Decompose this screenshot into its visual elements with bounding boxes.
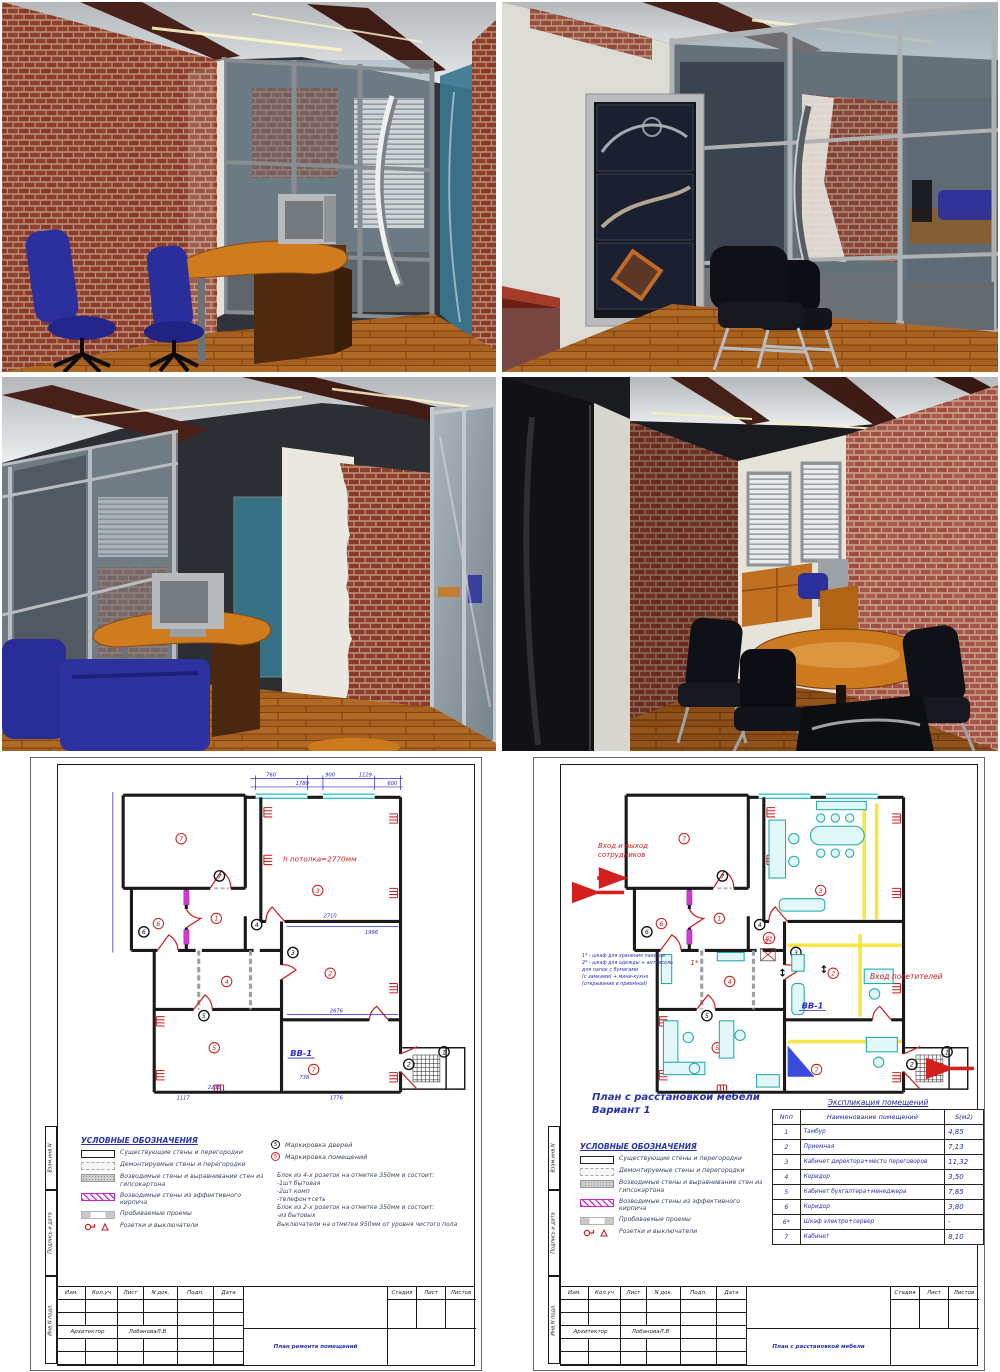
tb-podp: Подп. [681,1287,717,1300]
legend-item: Розетки и выключатели [580,1228,769,1237]
dark-wardrobe [502,377,594,751]
tb-koluch: Кол.уч [86,1287,118,1300]
svg-text:ВВ-1: ВВ-1 [802,1000,824,1010]
title-block: Изм. Кол.уч Лист N док. Подп. Дата Архит… [57,1286,475,1366]
legend-item: Возводимые стены и выравнивание стен из … [81,1173,270,1189]
gypsum-wall-swatch [81,1174,115,1182]
svg-text:1776: 1776 [330,1095,344,1101]
mirrored-wardrobe [432,405,496,747]
drawing-title: План ремонта помещений [244,1329,388,1365]
legend-item: Пробиваемые проемы [580,1216,769,1225]
note-line: Блок из 4-х розеток на отметке 350мм и с… [277,1172,472,1180]
furniture-floor-plan: ↕ ↕ 6* 1* 2* ВВ-1 [562,766,976,1108]
note-line: Выключатели на отметке 950мм от уровня ч… [277,1221,472,1229]
explication-title: Экспликация помещений [772,1098,984,1107]
demolished-wall-swatch [81,1162,115,1170]
table-row: 6Коридор3,80 [773,1200,984,1215]
side-label: Взам.инв.N [48,1143,54,1172]
ceiling-height-note: h потолка=2770мм [283,854,357,863]
table-row: 1Тамбур4,85 [773,1125,984,1140]
closet-notes: 1* - шкаф для хранения пакетов 2* - шкаф… [582,954,712,989]
svg-text:1117: 1117 [177,1095,191,1101]
svg-text:900: 900 [325,773,336,779]
render-meeting-room-svg [502,377,998,751]
vv1-label: ВВ-1 [288,1048,315,1058]
note-line: 2* - шкаф для одежды + антресоль [582,961,712,968]
svg-text:1996: 1996 [365,930,379,936]
window-blinds [748,473,790,565]
svg-text:760: 760 [266,773,277,779]
drawing-sheet-furniture-plan: Взам.инв.N Подпись и дата Инв.N подл. [533,757,985,1371]
side-label: Подпись и дата [551,1212,557,1253]
svg-text:2238: 2238 [208,1085,222,1091]
renovation-floor-plan: 760 1780 900 1129 600 2710 1996 2676 223… [59,766,473,1108]
note-line: -телефон+сеть [277,1196,472,1204]
legend-item: Демонтируемые стены и перегородки [81,1161,270,1170]
tb-data: Дата [214,1287,244,1300]
table-row: 4Коридор3,50 [773,1170,984,1185]
side-stamp-cell: Подпись и дата [45,1190,57,1276]
legend-item: Демонтируемые стены и перегородки [580,1167,769,1176]
tb-ndok: N док. [144,1287,178,1300]
electrical-notes: Блок из 4-х розеток на отметке 350мм и с… [277,1172,472,1229]
table-row: 3Кабинет директора+место переговоров11,3… [773,1155,984,1170]
side-stamp-cell: Подпись и дата [548,1190,560,1276]
legend-item: Существующие стены и перегородки [81,1149,270,1158]
socket-switch-icon [580,1229,614,1237]
side-stamp-cell: Взам.инв.N [45,1126,57,1190]
visitors-entrance-note: Вход посетителей [870,972,960,982]
explication-table: Nпп Наименование помещений S(м2) 1Тамбур… [772,1109,984,1245]
tb-izm: Изм. [58,1287,86,1300]
closet2-label: 2* [764,937,773,946]
table-header-row: Nпп Наименование помещений S(м2) [773,1110,984,1125]
svg-text:ВВ-1: ВВ-1 [290,1048,312,1058]
brick-wall-torn-plaster [340,463,432,707]
tb-stadia: Стадия [388,1287,417,1300]
white-wall [282,447,354,717]
render-office-mirror-wardrobe [2,377,496,751]
title-block: Изм. Кол.уч Лист N док. Подп. Дата Архит… [560,1286,978,1366]
legend-item: Существующие стены и перегородки [580,1155,769,1164]
legend: УСЛОВНЫЕ ОБОЗНАЧЕНИЯ Существующие стены … [580,1142,769,1240]
tb-architect-name: ЛобановаЛ.В [621,1326,681,1339]
render-meeting-room [502,377,998,751]
note-line: для папок с бумагами [582,968,712,975]
svg-text:1780: 1780 [296,781,310,787]
note-line: -1шт бытовая [277,1180,472,1188]
svg-text:600: 600 [387,781,398,787]
svg-text:↕: ↕ [820,964,829,976]
render-waiting-area-svg [502,2,998,372]
note-line: -из бытовых [277,1212,472,1220]
render-waiting-area [502,2,998,372]
side-label: Взам.инв.N [551,1143,557,1172]
room-marking-badge: 5 [271,1152,280,1161]
gypsum-wall-swatch [580,1180,614,1188]
note-line: Блок из 2-х розеток на отметке 350мм и с… [277,1204,472,1212]
tb-architect-role: Архитектор [561,1326,621,1339]
socket-switch-icon [81,1223,115,1231]
tb-koluch: Кол.уч [589,1287,621,1300]
triptych-artwork [586,94,704,326]
svg-text:2710: 2710 [324,913,338,919]
existing-wall-swatch [580,1156,614,1164]
dimension-lines: 760 1780 900 1129 600 2710 1996 2676 223… [113,773,403,1102]
brick-wall-right [472,20,496,372]
tb-list2: Лист [920,1287,949,1300]
side-label: Инв.N подл. [551,1304,557,1335]
tb-architect-name: ЛобановаЛ.В [118,1326,178,1339]
door-marking-item: 5Маркировка дверей [271,1140,367,1149]
reception-desk [174,241,352,364]
door-marking-badge: 5 [271,1140,280,1149]
table-row: 6*Шкаф электро+сервер- [773,1215,984,1230]
legend: УСЛОВНЫЕ ОБОЗНАЧЕНИЯ Существующие стены … [81,1136,270,1234]
note-line: -2шт комп [277,1188,472,1196]
tb-ndok: N док. [647,1287,681,1300]
svg-text:2676: 2676 [330,1009,344,1015]
existing-wall-swatch [81,1150,115,1158]
tb-listov: Листов [949,1287,979,1300]
room-explication: Экспликация помещений Nпп Наименование п… [772,1098,984,1245]
table-row: 2Приемная7,13 [773,1140,984,1155]
drawing-title: План с расстановкой мебели [747,1329,891,1365]
tb-list: Лист [118,1287,144,1300]
legend-item: Возводимые стены из эффективного кирпича [580,1198,769,1214]
room-marking-item: 5Маркировка помещений [271,1152,367,1161]
legend-item: Пробиваемые проемы [81,1210,270,1219]
brick-wall-swatch [81,1193,115,1201]
plan-heading: План с расстановкой мебели Вариант 1 [592,1092,760,1117]
side-stamp-cell: Взам.инв.N [548,1126,560,1190]
blue-triangle-marker [788,1046,815,1077]
legend-title: УСЛОВНЫЕ ОБОЗНАЧЕНИЯ [580,1142,769,1151]
note-line: (открывание в приемной) [582,982,712,989]
tb-listov: Листов [446,1287,476,1300]
staff-entrance-note: Вход и выход сотрудников [598,842,672,860]
crt-monitor [152,573,224,637]
side-label: Подпись и дата [48,1212,54,1253]
tb-data: Дата [717,1287,747,1300]
render-office-mirror-svg [2,377,496,751]
drawing-sheet-renovation-plan: Взам.инв.N Подпись и дата Инв.N подл. 76… [30,757,482,1371]
side-stamp-cell: Инв.N подл. [548,1276,560,1364]
brick-wall-swatch [580,1199,614,1207]
render-office-reception-svg [2,2,496,372]
svg-text:↕: ↕ [778,967,787,979]
window-blinds [802,463,840,561]
table-row: 7Кабинет8,10 [773,1230,984,1245]
tb-izm: Изм. [561,1287,589,1300]
tb-architect-role: Архитектор [58,1326,118,1339]
vv1-label: ВВ-1 [799,1000,826,1010]
design-presentation-page: 7 1 6 4 5 3 2 7 7 6 5 4 3 2 1 [0,0,1000,1372]
note-line: (с замками) + мини-кухня [582,975,712,982]
plan-heading-line2: Вариант 1 [592,1105,760,1118]
tb-podp: Подп. [178,1287,214,1300]
side-label: Инв.N подл. [48,1304,54,1335]
plan-heading-line1: План с расстановкой мебели [592,1092,760,1105]
tb-list2: Лист [417,1287,446,1300]
white-wall-sliver [594,403,630,751]
legend-item: Возводимые стены и выравнивание стен из … [580,1179,769,1195]
table-row: 5Кабинет бухгалтера+менеджера7,85 [773,1185,984,1200]
tb-stadia: Стадия [891,1287,920,1300]
render-office-reception [2,2,496,372]
side-stamp-cell: Инв.N подл. [45,1276,57,1364]
tb-list: Лист [621,1287,647,1300]
demolished-wall-swatch [580,1168,614,1176]
svg-text:738: 738 [299,1075,310,1081]
note-line: 1* - шкаф для хранения пакетов [582,954,712,961]
crt-tv [278,194,336,244]
svg-text:1129: 1129 [359,773,372,779]
opening-swatch [81,1211,115,1219]
legend-item: Возводимые стены из эффективного кирпича [81,1192,270,1208]
legend-title: УСЛОВНЫЕ ОБОЗНАЧЕНИЯ [81,1136,270,1145]
marking-legend: 5Маркировка дверей 5Маркировка помещений [271,1140,367,1164]
opening-swatch [580,1217,614,1225]
legend-item: Розетки и выключатели [81,1222,270,1231]
